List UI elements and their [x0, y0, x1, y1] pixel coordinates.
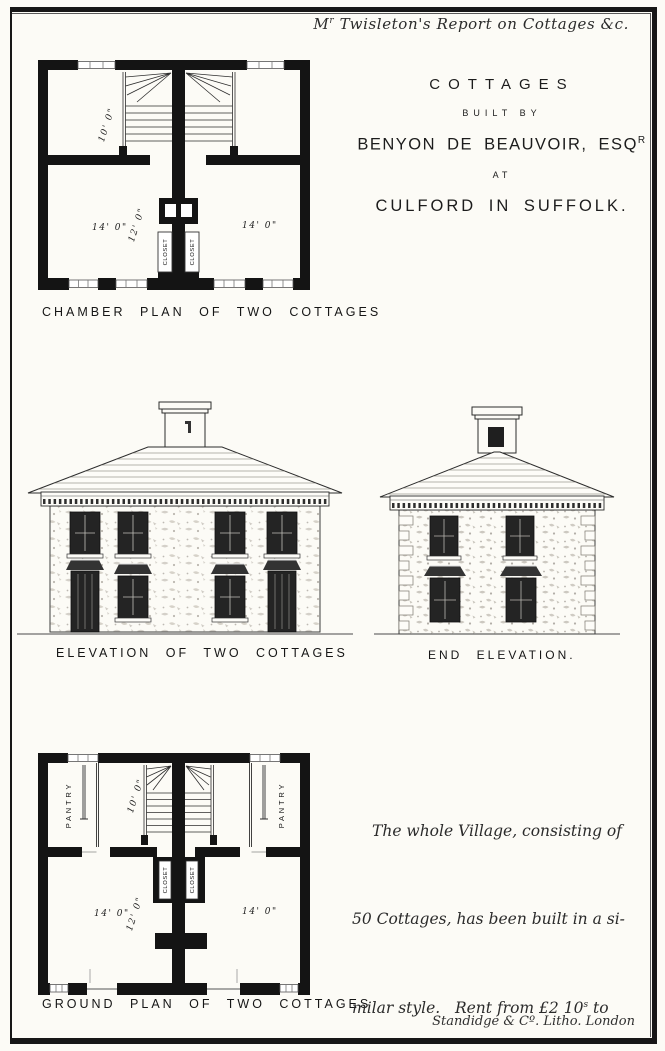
front-cornice	[41, 492, 329, 506]
ground-pantry-right-label: PANTRY	[277, 782, 286, 829]
front-elevation-caption: ELEVATION OF TWO COTTAGES	[56, 646, 348, 660]
chamber-walls	[38, 60, 310, 290]
ground-plan-caption: GROUND PLAN OF TWO COTTAGES	[42, 997, 371, 1011]
chamber-right-room-dim: 14' 0"	[242, 221, 278, 231]
report-note-rest: Twisleton's Report on Cottages &c.	[334, 15, 629, 33]
front-roof	[15, 447, 355, 493]
chamber-closet-right-label: CLOSET	[190, 239, 196, 266]
report-title-note: Mr Twisleton's Report on Cottages &c.	[313, 15, 629, 33]
ground-closet-right-label: CLOSET	[190, 867, 196, 894]
chamber-depth-dim: 12' 0"	[127, 206, 148, 243]
chamber-stairs-dim: 10' 0"	[97, 106, 118, 143]
ground-closet-left-label: CLOSET	[163, 867, 169, 894]
front-chimney	[159, 402, 211, 449]
ground-plan-drawing: PANTRY PANTRY CLOSET CLOSET 10' 0" 14' 0…	[38, 753, 310, 995]
end-roof	[372, 452, 622, 497]
title-place: CULFORD IN SUFFOLK.	[352, 197, 652, 216]
chamber-left-room-dim: 14' 0"	[92, 223, 128, 233]
chamber-plan-caption: CHAMBER PLAN OF TWO COTTAGES	[42, 305, 381, 319]
ground-right-room-dim: 14' 0"	[242, 907, 278, 917]
title-owner-sup: R	[638, 135, 647, 146]
ground-pantry-left-label: PANTRY	[64, 782, 73, 829]
ground-walls	[38, 753, 310, 995]
chamber-closet-left-label: CLOSET	[163, 239, 169, 266]
ground-left-room-dim: 14' 0"	[94, 909, 130, 919]
end-elevation-drawing	[372, 394, 622, 646]
chamber-plan-drawing: CLOSET CLOSET 10' 0" 14' 0" 12' 0" 14' 0…	[38, 60, 310, 290]
title-block: COTTAGES BUILT BY BENYON DE BEAUVOIR, ES…	[352, 76, 652, 216]
lithographer-imprint: Standidge & Cº. Litho. London	[432, 1014, 635, 1029]
title-owner-name: BENYON DE BEAUVOIR, ESQ	[357, 136, 638, 154]
note-line-1: The whole Village, consisting of	[352, 817, 656, 846]
title-owner: BENYON DE BEAUVOIR, ESQR	[352, 135, 652, 155]
title-cottages: COTTAGES	[352, 76, 652, 93]
end-chimney	[472, 407, 522, 453]
report-note-pre: M	[313, 15, 329, 33]
title-at: AT	[352, 170, 652, 180]
ground-stairs-dim: 10' 0"	[126, 777, 147, 814]
end-cornice	[390, 496, 604, 510]
front-elevation-drawing	[15, 390, 355, 646]
village-note: The whole Village, consisting of 50 Cott…	[352, 758, 656, 1051]
plate-page: Mr Twisleton's Report on Cottages &c.	[0, 0, 665, 1051]
note-line-2: 50 Cottages, has been built in a si-	[352, 905, 656, 934]
end-elevation-caption: END ELEVATION.	[428, 648, 576, 662]
title-built-by: BUILT BY	[352, 108, 652, 118]
